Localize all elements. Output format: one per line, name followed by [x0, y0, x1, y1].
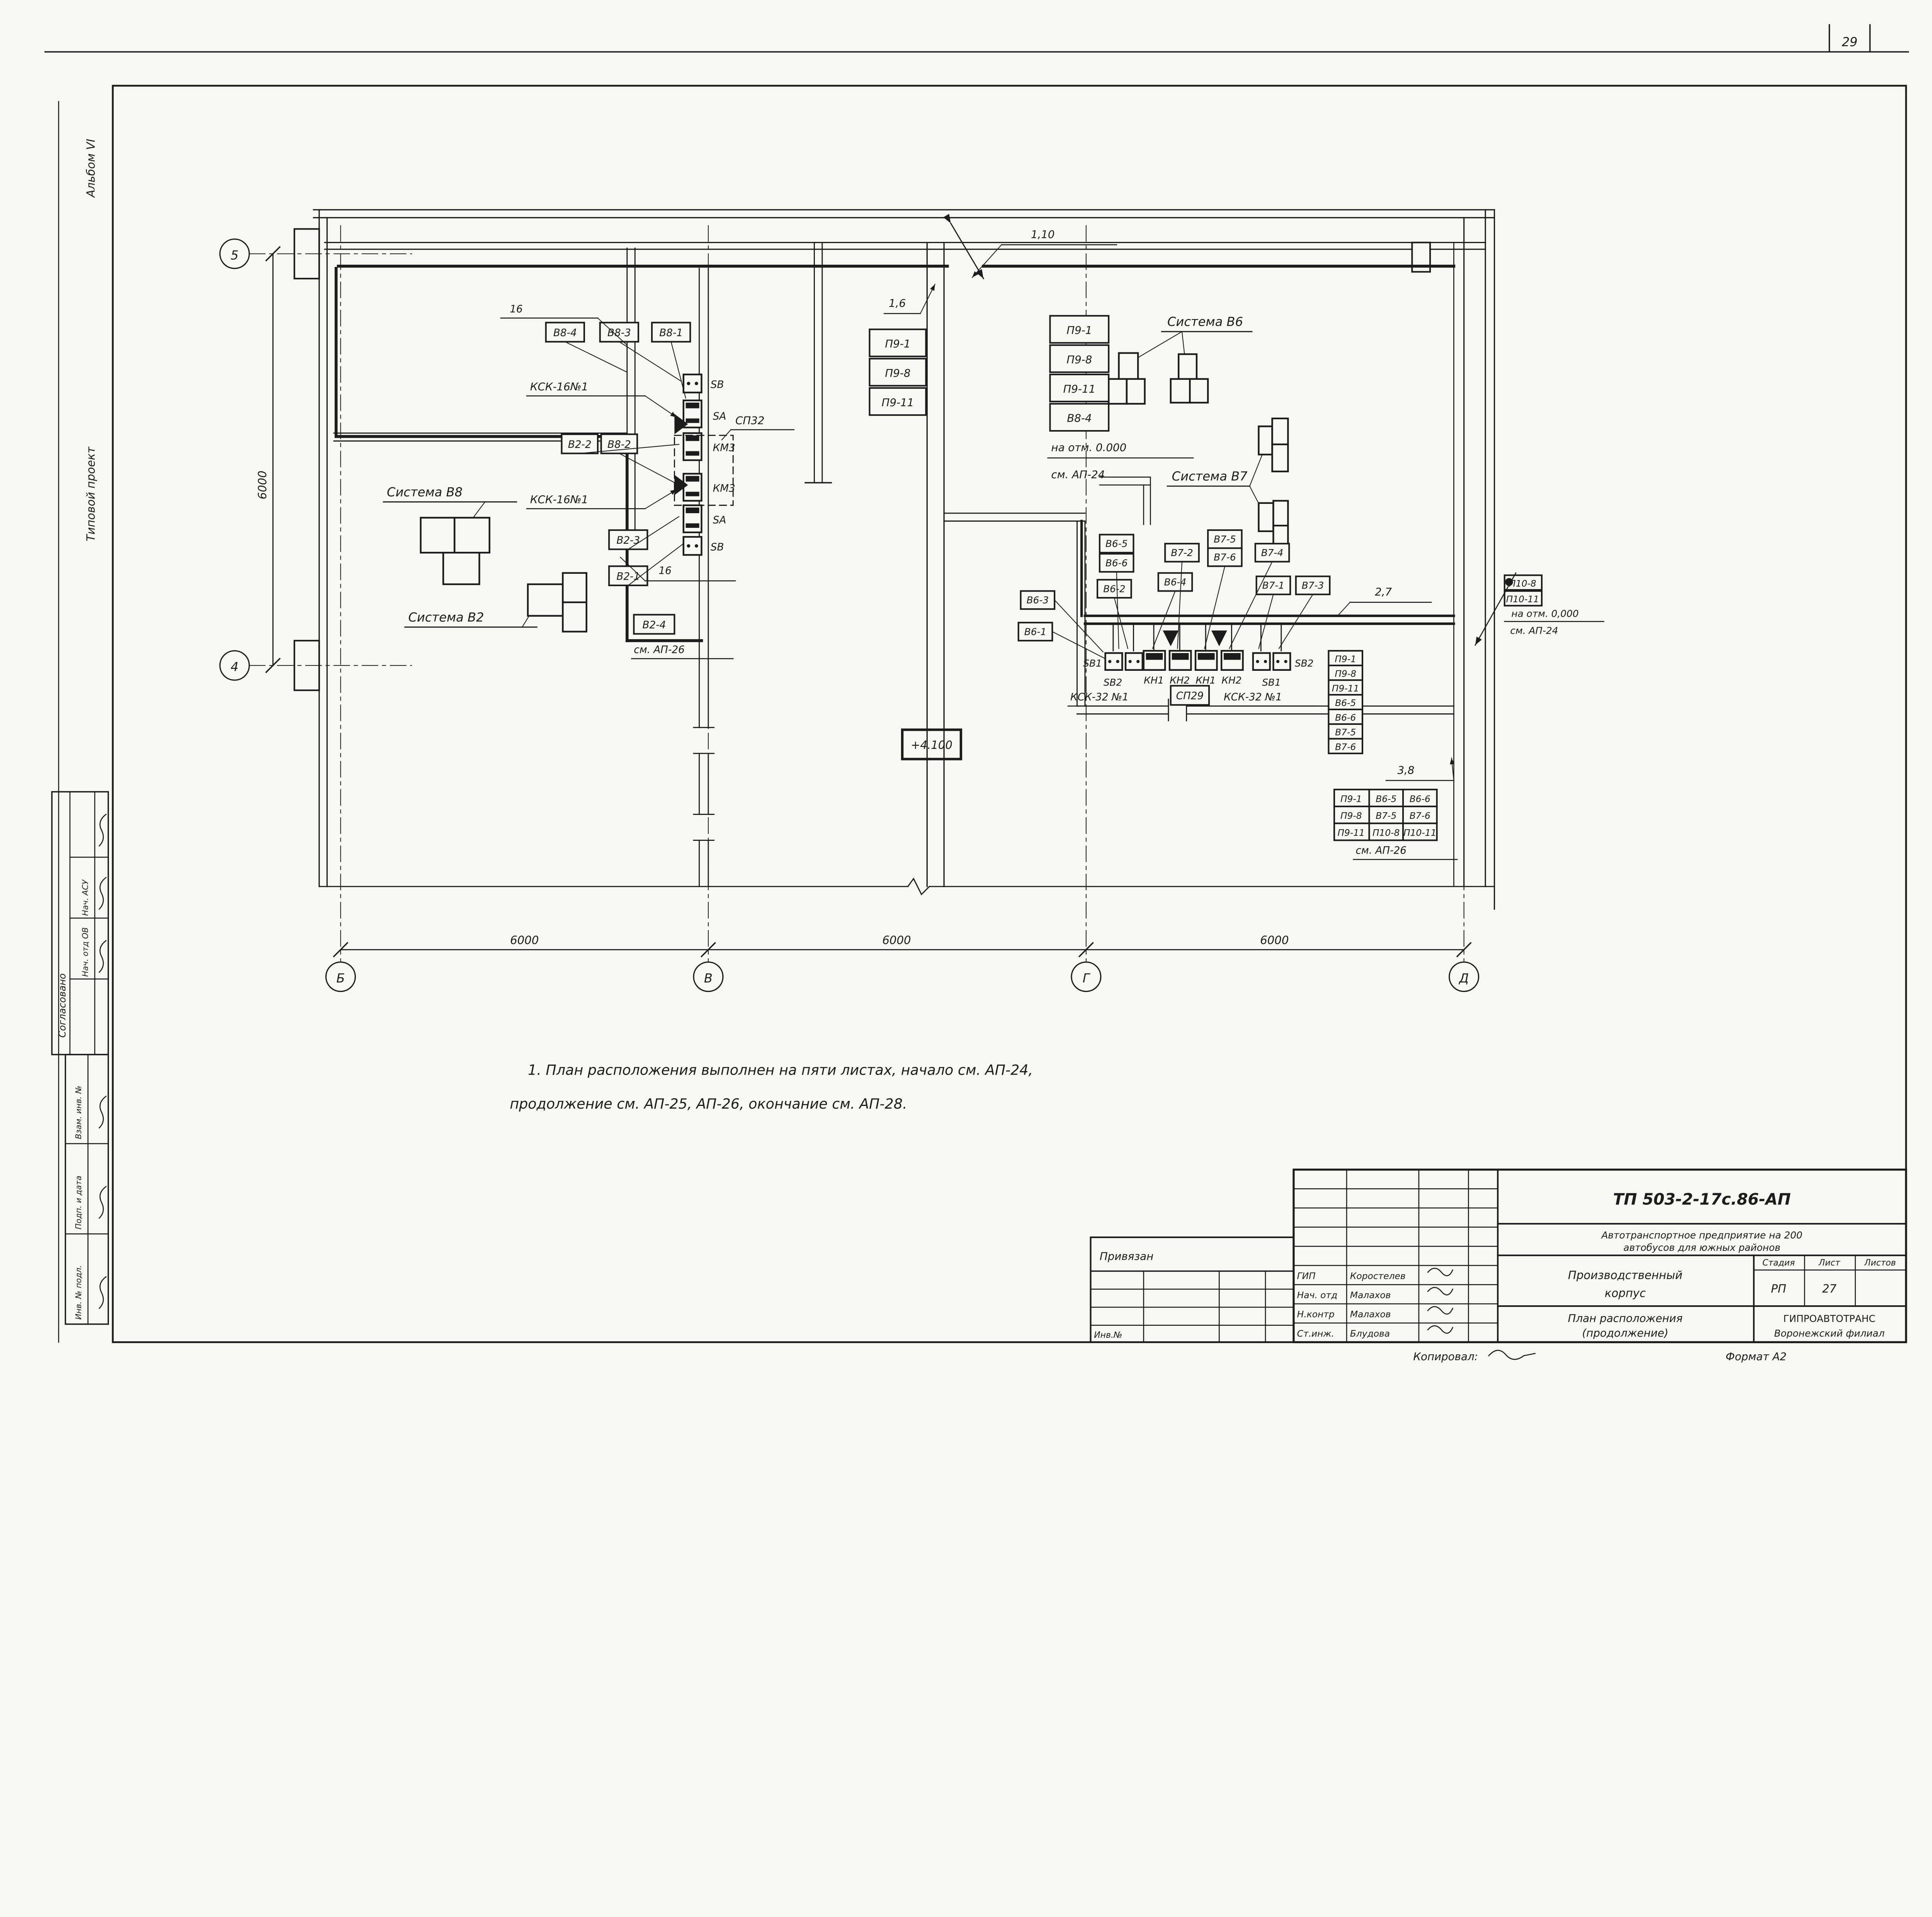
svg-text:П9-11: П9-11 [882, 396, 914, 409]
building-name-2: корпус [1605, 1287, 1646, 1300]
svg-text:В6-2: В6-2 [1103, 583, 1126, 594]
svg-text:КСК-32 №1: КСК-32 №1 [1224, 692, 1282, 703]
svg-text:В7-6: В7-6 [1214, 552, 1236, 563]
album-label: Альбом VI [84, 139, 97, 198]
format-label: Формат А2 [1726, 1350, 1787, 1363]
margin-labels: Альбом VI Типовой проект [84, 139, 97, 541]
svg-text:3,8: 3,8 [1397, 764, 1414, 776]
inv-label: Инв.№ [1094, 1330, 1122, 1340]
svg-text:Система В7: Система В7 [1172, 469, 1248, 483]
svg-text:СП32: СП32 [735, 414, 764, 427]
dev-kn2-label: КН2 [1170, 675, 1190, 686]
svg-text:СП29: СП29 [1176, 691, 1204, 702]
svg-text:П9-11: П9-11 [1332, 683, 1359, 694]
svg-text:Согласовано: Согласовано [56, 973, 68, 1038]
svg-text:В6-5: В6-5 [1105, 538, 1128, 549]
svg-text:Взам. инв. №: Взам. инв. № [74, 1085, 83, 1139]
project-label: Типовой проект [84, 446, 97, 541]
margin-stamp-agreed: Согласовано Нач. АСУ Нач. отд ОВ [52, 792, 108, 1055]
svg-text:В2-3: В2-3 [616, 535, 640, 546]
dev-sb2-label: SВ2 [1104, 677, 1122, 688]
svg-text:Подп. и дата: Подп. и дата [74, 1175, 83, 1229]
svg-text:П10-8: П10-8 [1509, 578, 1536, 589]
svg-text:В6-1: В6-1 [1024, 626, 1047, 637]
svg-text:Система В8: Система В8 [387, 485, 463, 499]
dev-kn1-label: КН1 [1144, 675, 1164, 686]
system-v2: Система В2 [405, 573, 587, 632]
svg-text:16: 16 [659, 565, 672, 577]
object-name-2: автобусов для южных районов [1623, 1242, 1780, 1253]
dev-sb1r-label: SВ1 [1262, 677, 1281, 688]
svg-text:П9-11: П9-11 [1063, 383, 1095, 395]
svg-text:В8-4: В8-4 [1067, 412, 1092, 425]
grid-38: 3,8 П9-1 В6-5 В6-6 П9-8 В7-5 В7-6 П9-11 … [1334, 758, 1457, 859]
building-name-1: Производственный [1568, 1269, 1682, 1282]
left-cluster-devices [674, 374, 733, 555]
svg-text:Нач. АСУ: Нач. АСУ [81, 879, 90, 916]
svg-text:В7-2: В7-2 [1171, 547, 1193, 558]
svg-text:В7-5: В7-5 [1214, 534, 1236, 545]
dev-kn2b-label: КН2 [1221, 675, 1242, 686]
dev-km3b-label: КМ3 [713, 483, 735, 495]
stage-value: РП [1771, 1282, 1786, 1295]
axis-g: Г [1083, 971, 1090, 985]
svg-text:1,10: 1,10 [1031, 228, 1055, 241]
sheet-header: Лист [1818, 1258, 1841, 1268]
top-stack-16: 1,6 П9-1 П9-8 П9-11 [869, 284, 935, 415]
svg-text:В7-6: В7-6 [1410, 810, 1430, 821]
svg-text:П10-11: П10-11 [1403, 827, 1436, 838]
sheet-title-2: (продолжение) [1582, 1327, 1668, 1339]
svg-text:П9-8: П9-8 [1340, 810, 1362, 821]
svg-text:П10-11: П10-11 [1506, 594, 1539, 605]
sheets-header: Листов [1864, 1258, 1896, 1268]
dim-6000-2: 6000 [882, 934, 911, 947]
axis-4: 4 [231, 660, 238, 674]
bottom-cluster-labels: КСК-32 №1 СП29 КСК-32 №1 [1068, 686, 1317, 706]
svg-text:Система В6: Система В6 [1167, 315, 1243, 329]
note-line-2: продолжение см. АП-25, АП-26, окончание … [510, 1095, 907, 1112]
svg-text:КСК-16№1: КСК-16№1 [530, 380, 588, 393]
dev-sb2r-label: SВ2 [1295, 658, 1314, 669]
sheet-frame [45, 25, 1908, 1342]
name-gip: Коростелев [1350, 1271, 1406, 1281]
elevation-value: +4.100 [911, 738, 952, 752]
name-nachotd: Малахов [1350, 1290, 1391, 1301]
org-branch: Воронежский филиал [1774, 1328, 1884, 1339]
svg-text:Инв. № подл.: Инв. № подл. [74, 1265, 83, 1320]
svg-text:П9-8: П9-8 [1066, 353, 1092, 366]
role-nachotd: Нач. отд [1297, 1290, 1338, 1301]
stage-header: Стадия [1762, 1258, 1795, 1268]
svg-text:В7-3: В7-3 [1302, 580, 1324, 591]
dev-kn1b-label: КН1 [1196, 675, 1216, 686]
sheet-title-1: План расположения [1568, 1312, 1683, 1325]
svg-text:см. АП-26: см. АП-26 [634, 644, 685, 656]
svg-text:В7-1: В7-1 [1262, 580, 1285, 591]
axis-b: Б [336, 971, 345, 985]
svg-text:1,6: 1,6 [889, 297, 906, 310]
svg-text:В6-6: В6-6 [1105, 557, 1128, 568]
svg-text:П9-1: П9-1 [1340, 793, 1362, 804]
dim-6000-1: 6000 [510, 934, 539, 947]
svg-text:КСК-32 №1: КСК-32 №1 [1070, 692, 1129, 703]
svg-text:В8-1: В8-1 [659, 327, 683, 339]
svg-text:В7-4: В7-4 [1261, 547, 1284, 558]
object-name-1: Автотранспортное предприятие на 200 [1600, 1230, 1802, 1241]
role-nkontr: Н.контр [1297, 1309, 1335, 1320]
svg-text:2,7: 2,7 [1375, 585, 1392, 598]
svg-text:В8-4: В8-4 [553, 327, 577, 339]
name-stinzh: Блудова [1350, 1328, 1390, 1339]
svg-text:Нач. отд ОВ: Нач. отд ОВ [81, 927, 90, 977]
axis-d: Д [1458, 971, 1469, 985]
svg-text:на отм. 0.000: на отм. 0.000 [1051, 441, 1126, 454]
svg-text:на отм. 0,000: на отм. 0,000 [1511, 608, 1578, 619]
role-stinzh: Ст.инж. [1297, 1328, 1334, 1339]
dev-sb1-label: SВ1 [1083, 658, 1102, 669]
svg-text:В2-4: В2-4 [642, 619, 666, 631]
svg-text:В6-4: В6-4 [1164, 577, 1187, 588]
svg-text:В7-5: В7-5 [1335, 727, 1356, 738]
svg-text:В8-3: В8-3 [607, 327, 631, 339]
attached-label: Привязан [1100, 1250, 1153, 1262]
svg-text:П10-8: П10-8 [1372, 827, 1400, 838]
svg-text:В6-5: В6-5 [1335, 697, 1356, 708]
margin-stamp-inventory: Взам. инв. № Подп. и дата Инв. № подл. [65, 1055, 108, 1324]
system-v6: Система В6 [1109, 315, 1252, 404]
sheet-value: 27 [1822, 1282, 1837, 1295]
copied-label: Копировал: [1413, 1350, 1478, 1363]
svg-text:П9-8: П9-8 [885, 367, 910, 379]
dev-sa-label: SA [713, 411, 726, 422]
dev-sb2-label: SВ [711, 541, 724, 553]
svg-text:см. АП-24: см. АП-24 [1510, 625, 1558, 636]
svg-text:см. АП-26: см. АП-26 [1355, 845, 1406, 857]
svg-text:см. АП-24: см. АП-24 [1051, 468, 1105, 481]
right-stack-27: 2,7 П9-1 П9-8 П9-11 В6-5 В6-6 В7-5 В7-6 [1328, 585, 1431, 754]
copied-signature [1489, 1351, 1535, 1359]
svg-text:В6-6: В6-6 [1410, 793, 1430, 804]
name-nkontr: Малахов [1350, 1309, 1391, 1320]
svg-text:В7-5: В7-5 [1376, 810, 1396, 821]
svg-text:В6-6: В6-6 [1335, 712, 1356, 723]
svg-text:П9-1: П9-1 [885, 337, 910, 350]
axis-v: В [704, 971, 713, 985]
svg-text:В2-2: В2-2 [568, 439, 592, 451]
svg-text:П9-11: П9-11 [1338, 827, 1365, 838]
dev-sa2-label: SA [713, 514, 726, 526]
dev-sb-label: SВ [711, 379, 724, 391]
svg-text:16: 16 [510, 304, 522, 315]
axis-5: 5 [231, 248, 238, 262]
svg-text:В7-6: В7-6 [1335, 742, 1356, 752]
dim-6000-v: 6000 [256, 471, 269, 499]
doc-number: ТП 503-2-17с.86-АП [1613, 1190, 1791, 1208]
org-name: ГИПРОАВТОТРАНС [1783, 1313, 1875, 1324]
svg-text:КСК-16№1: КСК-16№1 [530, 493, 588, 506]
svg-text:В6-3: В6-3 [1027, 595, 1049, 606]
drawing-sheet: 29 Альбом VI Типовой проект Согласовано … [0, 0, 1932, 1398]
role-gip: ГИП [1297, 1271, 1316, 1281]
svg-text:В6-5: В6-5 [1376, 793, 1396, 804]
svg-text:Система В2: Система В2 [408, 610, 484, 624]
axis-grid-lines [220, 226, 1478, 992]
svg-text:П9-8: П9-8 [1335, 668, 1356, 679]
page-number: 29 [1842, 35, 1857, 49]
note-line-1: 1. План расположения выполнен на пяти ли… [528, 1062, 1033, 1078]
svg-text:П9-1: П9-1 [1335, 653, 1356, 664]
system-v8: Система В8 [383, 485, 516, 584]
dev-km3-label: КМ3 [713, 442, 735, 454]
dim-6000-3: 6000 [1260, 934, 1289, 947]
svg-text:П9-1: П9-1 [1066, 324, 1092, 337]
